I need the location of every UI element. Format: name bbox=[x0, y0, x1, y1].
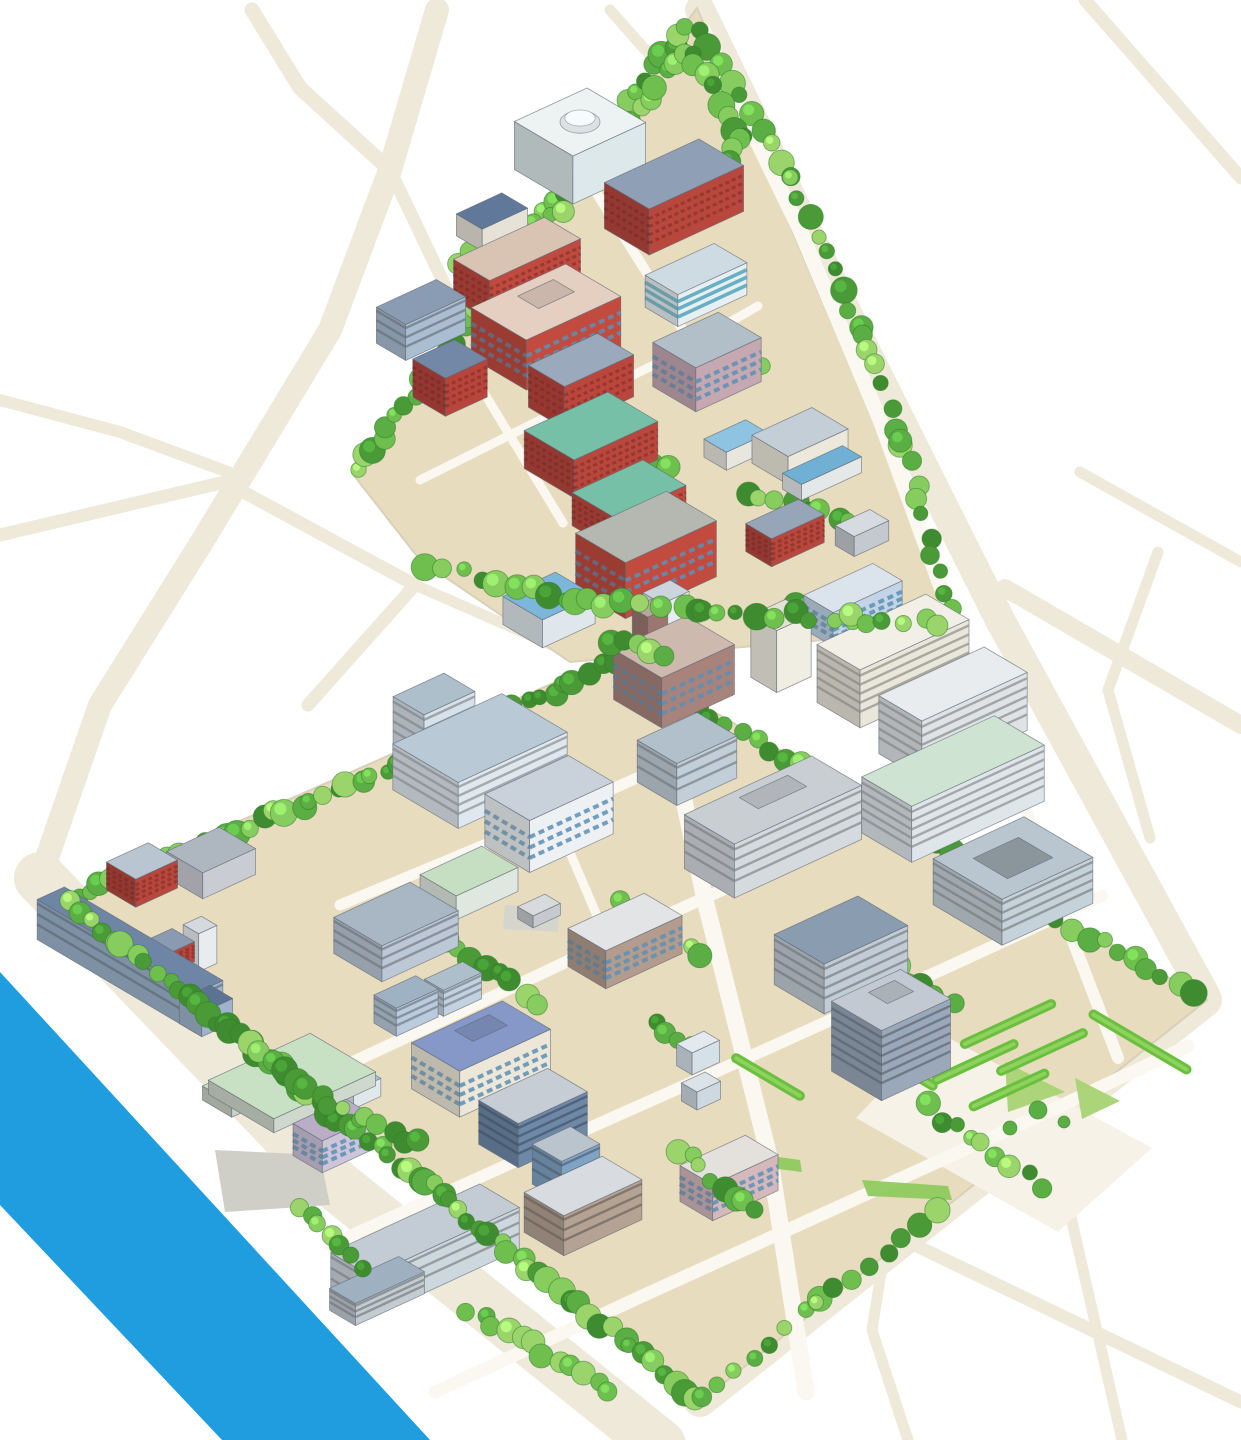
tree-highlight bbox=[713, 56, 723, 66]
tree-highlight bbox=[477, 959, 488, 970]
tree bbox=[812, 230, 826, 244]
tree-highlight bbox=[898, 618, 905, 625]
tree-highlight bbox=[707, 78, 715, 86]
tree bbox=[921, 546, 940, 565]
tree bbox=[840, 303, 856, 319]
tree-highlight bbox=[519, 1262, 529, 1272]
tree-highlight bbox=[752, 732, 760, 740]
tree-highlight bbox=[935, 1115, 944, 1124]
tree-highlight bbox=[868, 356, 877, 365]
tree bbox=[765, 491, 783, 509]
tree-highlight bbox=[651, 1016, 658, 1023]
tree bbox=[1152, 969, 1167, 984]
tree bbox=[318, 1097, 337, 1116]
tree-highlight bbox=[311, 1217, 319, 1225]
tree-highlight bbox=[325, 1228, 334, 1237]
tree bbox=[873, 375, 888, 390]
tree-highlight bbox=[381, 1149, 388, 1156]
bush-0 bbox=[1029, 1101, 1047, 1119]
tree-highlight bbox=[266, 1053, 275, 1062]
tree-highlight bbox=[613, 893, 622, 902]
outer-street-3 bbox=[0, 400, 228, 472]
tree bbox=[642, 75, 667, 100]
tree bbox=[823, 1278, 843, 1298]
tree-highlight bbox=[452, 1203, 460, 1211]
tree bbox=[906, 488, 927, 509]
bush-1 bbox=[1003, 1121, 1017, 1135]
tree-highlight bbox=[892, 432, 902, 442]
tree-highlight bbox=[362, 1135, 370, 1143]
tree bbox=[857, 615, 875, 633]
tree-highlight bbox=[410, 1132, 420, 1142]
tree-highlight bbox=[539, 586, 551, 598]
tree bbox=[1098, 932, 1113, 947]
tree bbox=[860, 1258, 878, 1276]
tree-highlight bbox=[641, 642, 652, 653]
tree bbox=[654, 646, 674, 666]
tree-highlight bbox=[601, 1384, 610, 1393]
tree-highlight bbox=[613, 591, 624, 602]
bush-2 bbox=[1058, 1116, 1070, 1128]
tree-highlight bbox=[524, 694, 531, 701]
tree-highlight bbox=[1001, 1158, 1011, 1168]
tree bbox=[336, 1101, 350, 1115]
tree bbox=[750, 490, 766, 506]
tree-highlight bbox=[481, 1310, 489, 1318]
tree-highlight bbox=[509, 578, 520, 589]
tree-highlight bbox=[811, 1297, 818, 1304]
roof-cylinder-top bbox=[565, 110, 595, 126]
tree-highlight bbox=[821, 245, 828, 252]
tree bbox=[691, 1158, 705, 1172]
tree-highlight bbox=[788, 602, 799, 613]
tree bbox=[688, 944, 712, 968]
tree-highlight bbox=[534, 692, 541, 699]
tree bbox=[343, 1247, 359, 1263]
tree-highlight bbox=[695, 603, 704, 612]
tree bbox=[950, 1117, 964, 1131]
tree-highlight bbox=[86, 914, 93, 921]
outer-street-13 bbox=[1108, 552, 1158, 838]
tree-highlight bbox=[695, 1390, 704, 1399]
tree-highlight bbox=[764, 1339, 771, 1346]
tree-highlight bbox=[303, 795, 310, 802]
tree bbox=[366, 1114, 387, 1135]
tree-highlight bbox=[988, 1149, 997, 1158]
tree-highlight bbox=[652, 45, 664, 57]
tree bbox=[676, 18, 693, 35]
tree-highlight bbox=[791, 193, 798, 200]
tree-highlight bbox=[276, 1060, 288, 1072]
tree bbox=[884, 400, 902, 418]
tree-highlight bbox=[401, 1161, 412, 1172]
tree-highlight bbox=[501, 1321, 512, 1332]
tree-highlight bbox=[357, 1262, 365, 1270]
tree bbox=[933, 564, 947, 578]
tree-highlight bbox=[190, 994, 201, 1005]
tree-highlight bbox=[876, 614, 884, 622]
tree-highlight bbox=[966, 1132, 973, 1139]
tree-highlight bbox=[920, 1094, 931, 1105]
tree-highlight bbox=[767, 611, 776, 620]
tree-highlight bbox=[363, 441, 375, 453]
tree-highlight bbox=[800, 1304, 807, 1311]
tree bbox=[927, 615, 948, 636]
tree-highlight bbox=[602, 633, 614, 645]
tree bbox=[529, 1344, 553, 1368]
tree bbox=[314, 786, 332, 804]
tree bbox=[1180, 980, 1207, 1007]
tree-highlight bbox=[332, 1238, 341, 1247]
tree-highlight bbox=[95, 925, 104, 934]
tree bbox=[1032, 1179, 1051, 1198]
outer-street-5 bbox=[308, 585, 415, 705]
tree-highlight bbox=[831, 264, 837, 270]
tree bbox=[135, 953, 151, 969]
tree-highlight bbox=[938, 588, 945, 595]
tree-highlight bbox=[563, 673, 574, 684]
tree-highlight bbox=[636, 1344, 646, 1354]
tree-highlight bbox=[766, 137, 773, 144]
outer-street-1 bbox=[252, 10, 390, 170]
tree-highlight bbox=[653, 599, 663, 609]
tree-highlight bbox=[244, 822, 252, 830]
tree bbox=[902, 451, 921, 470]
tree-highlight bbox=[459, 564, 466, 571]
tree-highlight bbox=[1127, 949, 1138, 960]
tree-highlight bbox=[563, 1358, 572, 1367]
tree bbox=[1022, 1165, 1037, 1180]
tree-highlight bbox=[699, 65, 710, 76]
tree-highlight bbox=[735, 1192, 745, 1202]
tree-highlight bbox=[843, 606, 854, 617]
tree-highlight bbox=[72, 905, 82, 915]
tree-highlight bbox=[479, 1225, 490, 1236]
tree-highlight bbox=[859, 342, 868, 351]
tree bbox=[746, 1201, 763, 1218]
tree bbox=[891, 1229, 910, 1248]
outer-street-10 bbox=[1085, 0, 1241, 178]
tree-highlight bbox=[623, 1340, 630, 1347]
tree bbox=[457, 1303, 475, 1321]
campus-map-illustration bbox=[0, 0, 1241, 1440]
tree-highlight bbox=[658, 1368, 666, 1376]
tree-highlight bbox=[461, 1215, 468, 1222]
tree bbox=[881, 1245, 898, 1262]
tree-highlight bbox=[730, 607, 737, 614]
tree-highlight bbox=[274, 803, 286, 815]
tree-highlight bbox=[526, 578, 536, 588]
tree-highlight bbox=[743, 104, 754, 115]
tree-highlight bbox=[556, 203, 566, 213]
tree-highlight bbox=[749, 1352, 756, 1359]
tree-highlight bbox=[364, 770, 371, 777]
tree-highlight bbox=[835, 280, 847, 292]
tree bbox=[971, 1133, 989, 1151]
tree bbox=[798, 204, 823, 229]
tree-highlight bbox=[487, 574, 499, 586]
tree-highlight bbox=[297, 1078, 308, 1089]
tree bbox=[709, 1377, 725, 1393]
campus-map bbox=[0, 0, 1241, 1440]
tree-highlight bbox=[251, 1043, 261, 1053]
tree-highlight bbox=[728, 1365, 735, 1372]
tree bbox=[527, 995, 547, 1015]
tree-highlight bbox=[501, 971, 511, 981]
tree-highlight bbox=[645, 1352, 655, 1362]
tree bbox=[433, 559, 452, 578]
tree-highlight bbox=[785, 172, 792, 179]
tree-highlight bbox=[63, 893, 72, 902]
tree-highlight bbox=[711, 607, 718, 614]
tree bbox=[800, 613, 816, 629]
tree-highlight bbox=[778, 752, 788, 762]
tree bbox=[631, 594, 649, 612]
tree bbox=[925, 1198, 950, 1223]
tree bbox=[777, 1320, 792, 1335]
tree-highlight bbox=[377, 1139, 385, 1147]
tree bbox=[842, 1270, 861, 1289]
tree bbox=[914, 506, 928, 520]
tree-highlight bbox=[657, 1025, 667, 1035]
tree-highlight bbox=[630, 86, 637, 93]
tree-highlight bbox=[660, 458, 670, 468]
tree-highlight bbox=[595, 597, 606, 608]
